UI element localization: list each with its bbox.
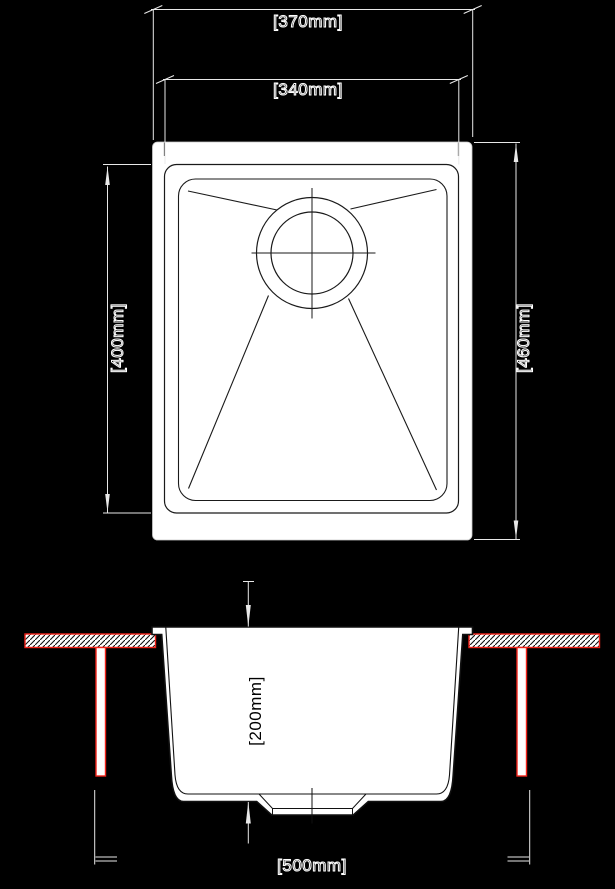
- dim-bowl-depth-label: [200mm]: [246, 676, 266, 746]
- dim-cabinet-width-label: [500mm]: [277, 856, 347, 876]
- sink-outline-section: [152, 627, 473, 815]
- section-view: [25, 627, 600, 824]
- sink-technical-drawing: [370mm] [340mm] [400mm] [460mm] [200mm] …: [0, 0, 615, 889]
- drawing-linework: [0, 0, 615, 889]
- plan-view: [153, 142, 473, 540]
- countertop-right: [469, 634, 600, 648]
- dim-outer-length-label: [460mm]: [514, 303, 534, 373]
- cabinet-panel-right: [517, 648, 527, 777]
- dim-bowl-width-label: [340mm]: [273, 80, 343, 100]
- cabinet-panel-left: [96, 648, 106, 777]
- countertop-left: [25, 634, 156, 648]
- dim-bowl-length-label: [400mm]: [108, 303, 128, 373]
- dim-outer-width-label: [370mm]: [273, 12, 343, 32]
